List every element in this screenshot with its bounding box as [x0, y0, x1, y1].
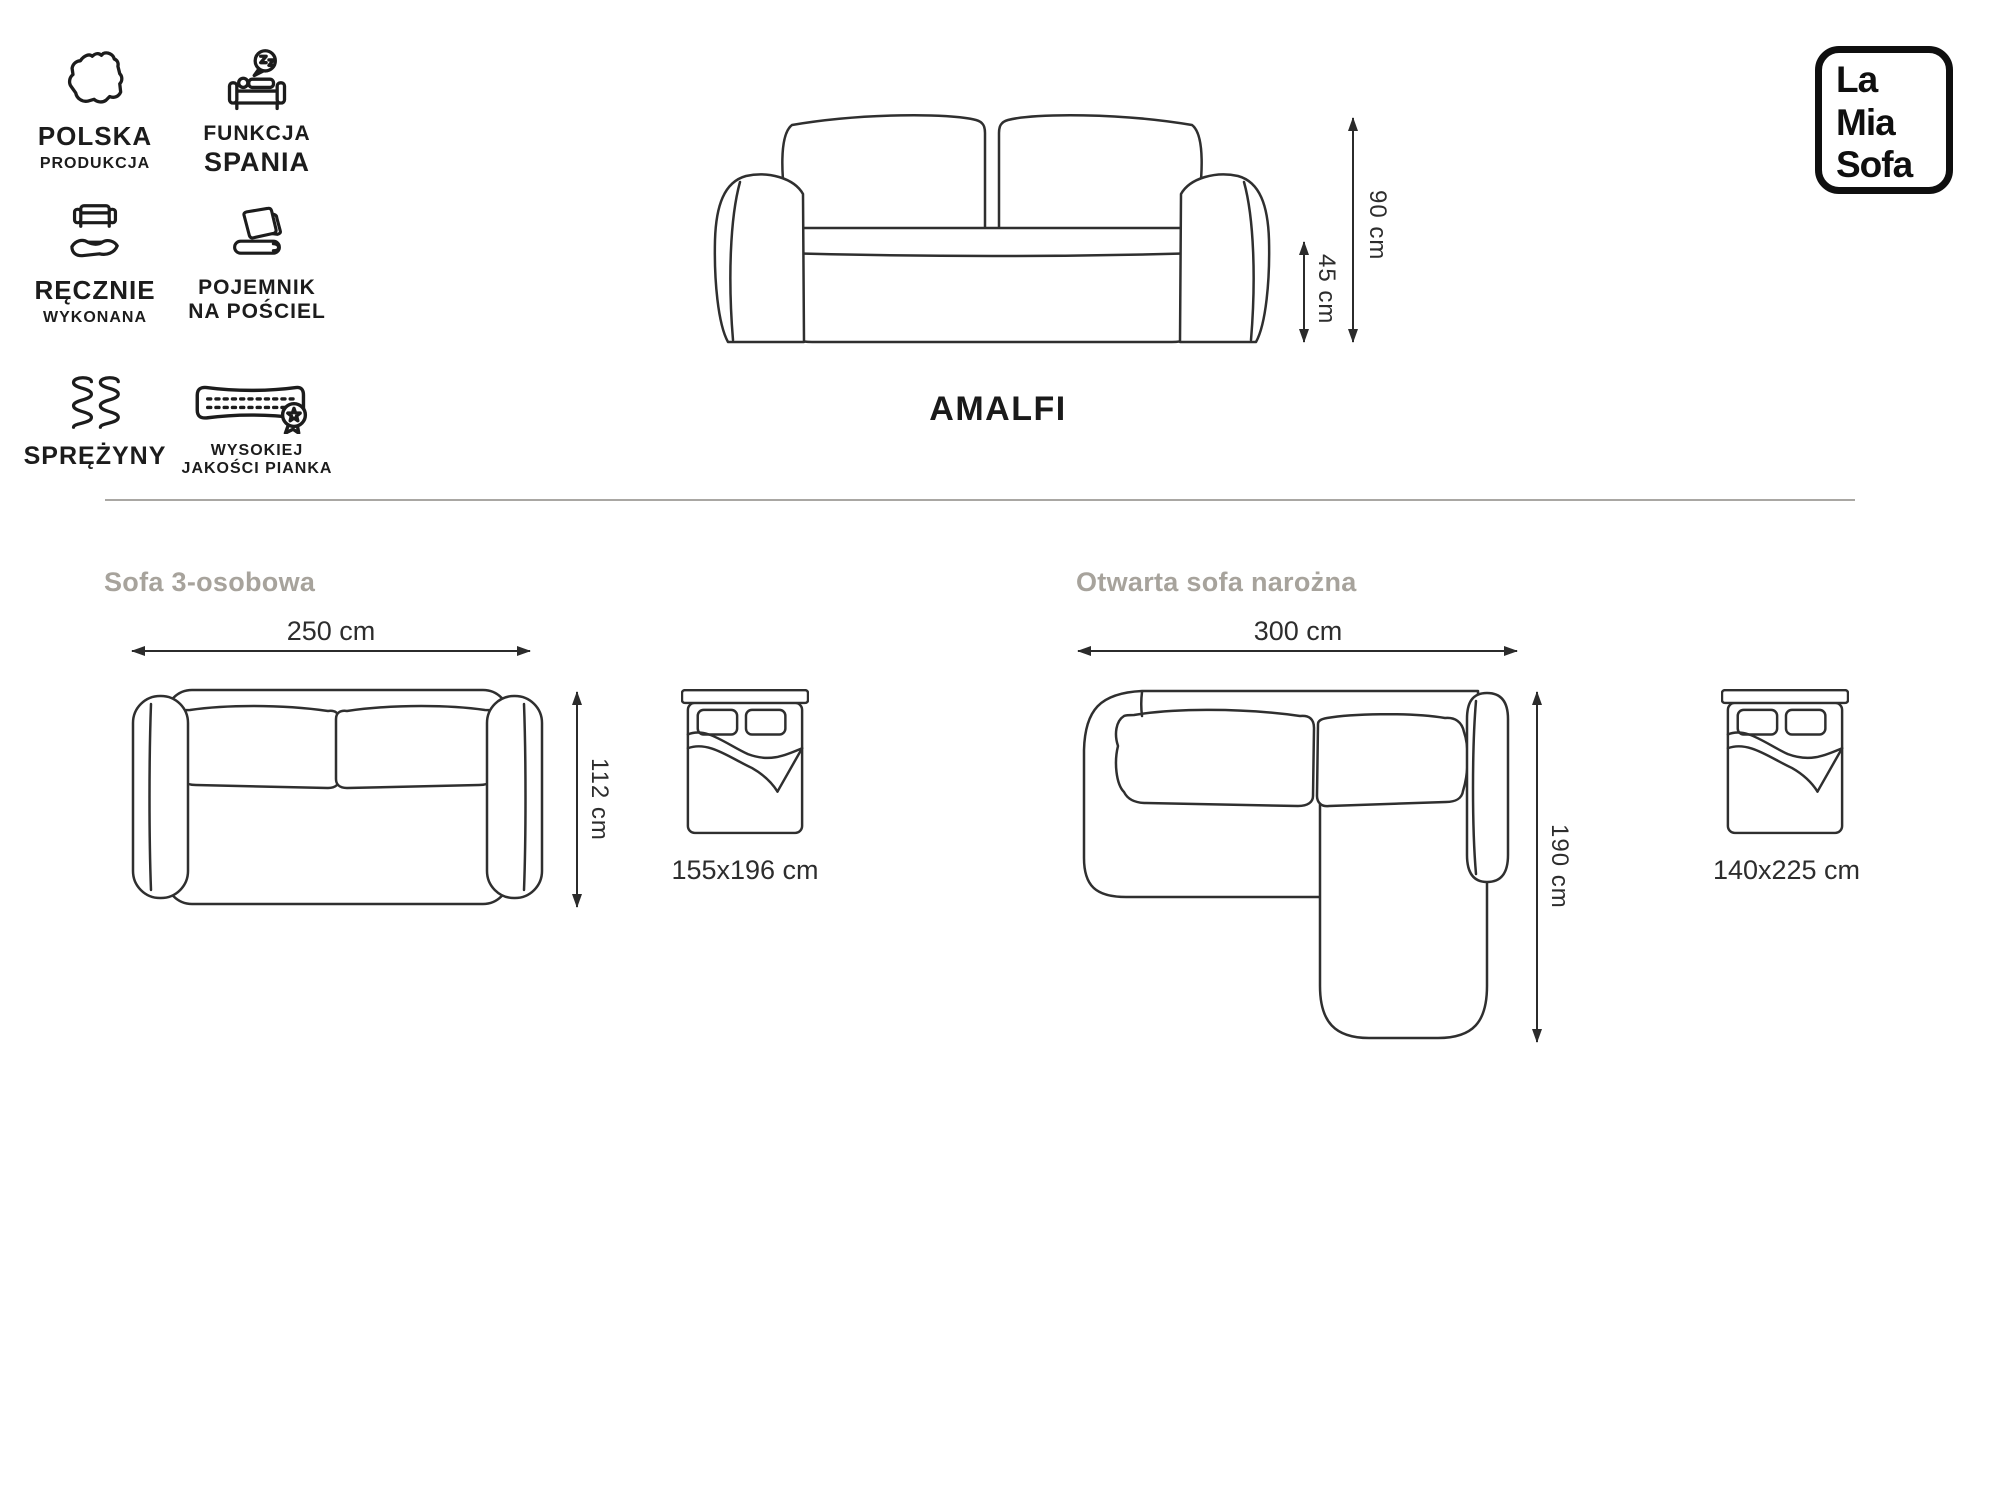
variant-2-title: Otwarta sofa narożna — [1076, 567, 1357, 598]
feature-label-primary: WYSOKIEJ — [211, 442, 303, 460]
sofa-front-view-drawing — [712, 110, 1272, 345]
section-divider — [105, 499, 1855, 501]
poland-map-icon — [62, 44, 128, 114]
feature-label-secondary: SPANIA — [204, 147, 310, 178]
bedding-storage-icon — [226, 202, 288, 268]
variant-1-bed-size-label: 155x196 cm — [655, 855, 835, 886]
feature-funkcja-spania: FUNKCJA SPANIA — [162, 44, 352, 178]
variant-1-width-arrow — [132, 650, 530, 652]
feature-polska-produkcja: POLSKA PRODUKCJA — [10, 44, 180, 173]
springs-icon — [61, 372, 129, 434]
feature-pojemnik-na-posciel: POJEMNIK NA POŚCIEL — [162, 202, 352, 324]
handmade-sofa-hand-icon — [63, 202, 127, 268]
variant-1-depth-label: 112 cm — [585, 758, 613, 841]
seat-height-label: 45 cm — [1312, 254, 1340, 324]
total-height-label: 90 cm — [1363, 190, 1391, 260]
sofa-top-view-drawing — [130, 688, 545, 910]
feature-label-secondary: PRODUKCJA — [40, 155, 150, 173]
variant-1-width-label: 250 cm — [231, 616, 431, 647]
variant-2-width-label: 300 cm — [1198, 616, 1398, 647]
feature-label-primary: FUNKCJA — [203, 122, 310, 146]
product-name: AMALFI — [848, 390, 1148, 429]
feature-label-secondary: NA POŚCIEL — [188, 300, 326, 324]
feature-label-secondary: JAKOŚCI PIANKA — [182, 460, 333, 478]
logo-line: Mia — [1836, 102, 1946, 145]
variant-2-bed-size-label: 140x225 cm — [1694, 855, 1879, 886]
variant-1-title: Sofa 3-osobowa — [104, 567, 315, 598]
variant-2-depth-arrow — [1536, 692, 1538, 1042]
corner-sofa-top-view-drawing — [1078, 688, 1510, 1044]
feature-label-secondary: WYKONANA — [43, 309, 147, 327]
product-spec-sheet: POLSKA PRODUKCJA FUNKCJA SPANIA — [0, 0, 2000, 1500]
logo-line: Sofa — [1836, 144, 1946, 187]
feature-sprezyny: SPRĘŻYNY — [10, 372, 180, 471]
feature-label-primary: SPRĘŻYNY — [24, 442, 167, 471]
bed-size-icon — [1721, 689, 1849, 839]
feature-label-primary: POJEMNIK — [198, 276, 316, 300]
seat-height-dimension-arrow — [1303, 242, 1305, 342]
total-height-dimension-arrow — [1352, 118, 1354, 342]
sleeping-function-icon — [224, 44, 290, 114]
feature-label-primary: POLSKA — [38, 122, 152, 152]
quality-foam-icon — [195, 376, 319, 434]
lamiasofa-logo: La Mia Sofa — [1815, 46, 1953, 194]
feature-label-primary: RĘCZNIE — [34, 276, 155, 306]
variant-2-depth-label: 190 cm — [1545, 824, 1573, 909]
feature-recznie-wykonana: RĘCZNIE WYKONANA — [10, 202, 180, 327]
bed-size-icon — [681, 689, 809, 839]
feature-wysokiej-jakosci-pianka: WYSOKIEJ JAKOŚCI PIANKA — [162, 376, 352, 479]
variant-2-width-arrow — [1078, 650, 1517, 652]
variant-1-depth-arrow — [576, 692, 578, 907]
logo-line: La — [1836, 59, 1946, 102]
